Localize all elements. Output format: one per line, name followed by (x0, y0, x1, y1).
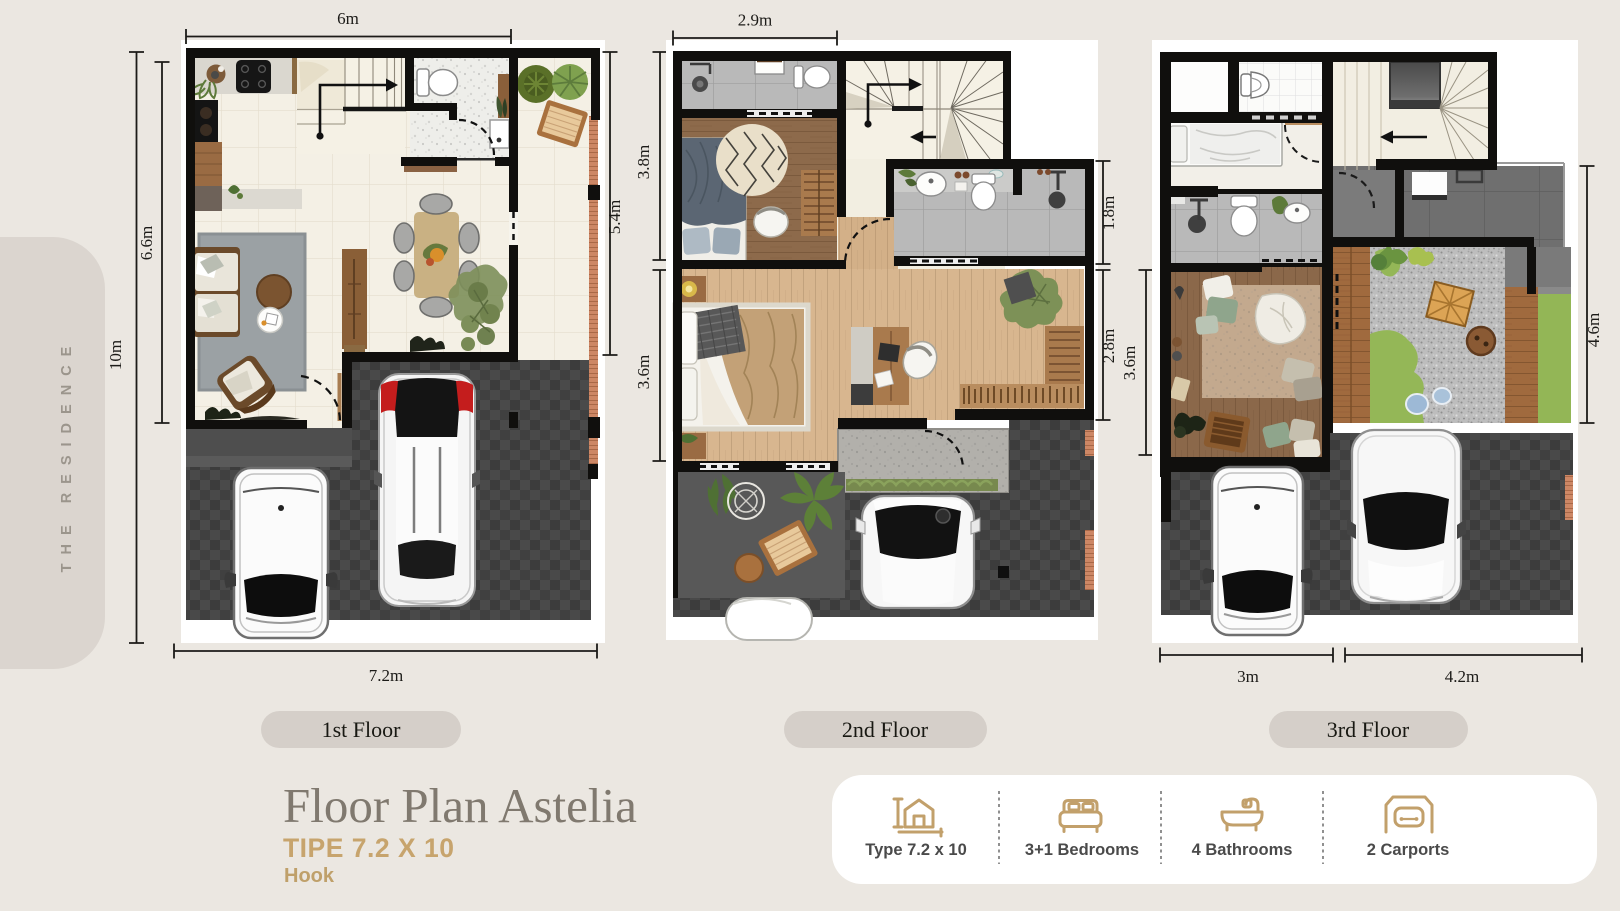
svg-text:2.8m: 2.8m (1099, 329, 1118, 363)
svg-text:Type 7.2 x 10: Type 7.2 x 10 (865, 841, 967, 859)
svg-text:7.2m: 7.2m (369, 666, 403, 685)
svg-text:3.6m: 3.6m (634, 355, 653, 389)
svg-text:Floor Plan Astelia: Floor Plan Astelia (283, 778, 637, 833)
svg-text:4 Bathrooms: 4 Bathrooms (1192, 841, 1293, 859)
svg-text:3rd Floor: 3rd Floor (1327, 717, 1410, 742)
svg-text:TIPE 7.2 X 10: TIPE 7.2 X 10 (283, 833, 454, 863)
svg-text:6.6m: 6.6m (137, 226, 156, 260)
svg-text:1st Floor: 1st Floor (322, 717, 402, 742)
svg-text:5.4m: 5.4m (605, 200, 624, 234)
svg-text:3.6m: 3.6m (1120, 346, 1139, 380)
svg-text:THE RESIDENCE: THE RESIDENCE (59, 338, 75, 573)
svg-text:3+1 Bedrooms: 3+1 Bedrooms (1025, 841, 1139, 859)
svg-text:3.8m: 3.8m (634, 145, 653, 179)
svg-text:6m: 6m (337, 9, 359, 28)
svg-text:10m: 10m (106, 340, 125, 370)
svg-text:4.2m: 4.2m (1445, 667, 1479, 686)
svg-text:2.9m: 2.9m (738, 11, 772, 30)
svg-text:3m: 3m (1237, 667, 1259, 686)
svg-text:2 Carports: 2 Carports (1367, 841, 1450, 859)
svg-text:Hook: Hook (284, 865, 335, 887)
svg-text:1.8m: 1.8m (1099, 196, 1118, 230)
svg-text:4.6m: 4.6m (1584, 313, 1603, 347)
svg-text:2nd Floor: 2nd Floor (842, 717, 929, 742)
